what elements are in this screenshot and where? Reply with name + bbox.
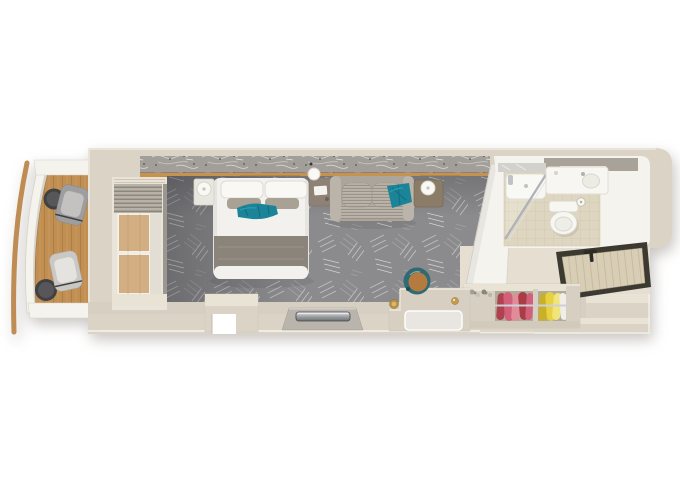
sofa-cushion-left (342, 183, 372, 207)
wardrobe-top-edge (464, 284, 580, 291)
pillow-white-right (265, 181, 307, 198)
sink-basin (583, 174, 600, 188)
bed-foot-edge (214, 266, 308, 279)
wardrobe (464, 284, 580, 328)
sofa-arm-left (330, 176, 341, 221)
sconce-cord (310, 163, 313, 166)
glass-pane-lower (118, 254, 150, 294)
toilet-paper-core (580, 201, 582, 203)
soap-item (554, 171, 558, 175)
door-seam-shadow (163, 184, 167, 298)
sink-faucet (581, 172, 585, 176)
toilet (549, 201, 579, 237)
column-notch (212, 314, 236, 334)
balcony-partition-top (34, 160, 94, 175)
bathroom (494, 156, 650, 248)
toilet-tank (549, 201, 578, 212)
sofa (330, 176, 414, 221)
balcony (25, 160, 94, 318)
stateroom-floorplan-image: Top-down 3D rendered floor plan of a cru… (0, 0, 680, 487)
door-sill (112, 294, 167, 306)
wardrobe-divider (533, 289, 538, 325)
toilet-seat (555, 217, 572, 231)
phone-on-nightstand (314, 186, 328, 196)
desk (389, 288, 470, 331)
wall-column (205, 294, 258, 334)
tv-console (282, 308, 363, 330)
door-jamb (150, 214, 161, 294)
balcony-side-table-2-top (38, 282, 54, 298)
wardrobe-front-lip (464, 321, 580, 328)
bed (213, 178, 309, 279)
nightstand-right (309, 178, 333, 206)
door-track (112, 177, 167, 185)
pillow-white-left (221, 181, 263, 198)
acrylic-chair (405, 311, 462, 330)
sofa-side-table (414, 180, 443, 207)
pouf-stool (404, 268, 431, 295)
floorplan (14, 148, 672, 334)
sink-counter (546, 167, 608, 194)
sliding-glass-door (112, 177, 167, 310)
floorplan-svg: Top-down 3D rendered floor plan of a cru… (0, 0, 680, 487)
ship-hull-edge (14, 163, 27, 332)
curtain (114, 184, 162, 213)
perfume-bottle (452, 298, 459, 305)
glass-pane-upper (118, 214, 150, 252)
nightstand-left (194, 179, 214, 205)
balcony-partition-bottom (28, 303, 90, 318)
